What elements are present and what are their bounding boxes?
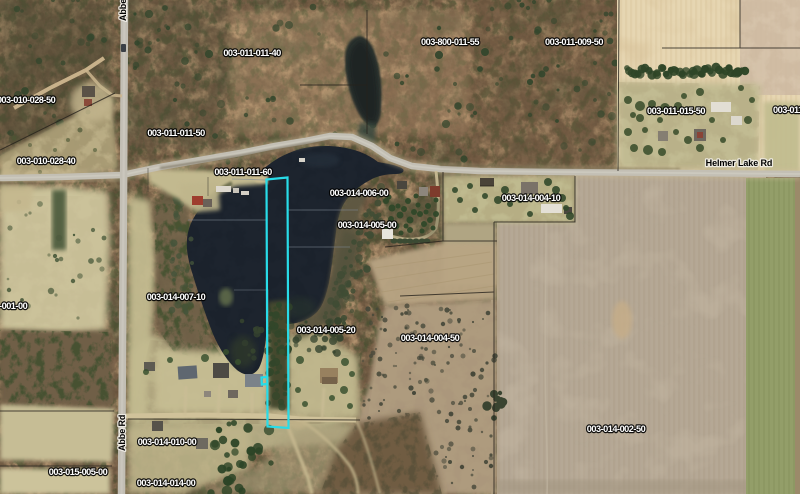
svg-text:Abbe Rd: Abbe Rd — [118, 0, 128, 21]
svg-text:003-014-007-10: 003-014-007-10 — [147, 292, 206, 302]
svg-text:003-011-011-60: 003-011-011-60 — [214, 167, 272, 177]
svg-text:Helmer Lake Rd: Helmer Lake Rd — [706, 158, 773, 168]
svg-text:003-011-011-50: 003-011-011-50 — [147, 128, 205, 138]
svg-text:003-015-005-00: 003-015-005-00 — [49, 467, 108, 477]
svg-text:003-014-005-00: 003-014-005-00 — [338, 220, 397, 230]
svg-text:003-015-001-00: 003-015-001-00 — [0, 301, 28, 311]
svg-text:003-010-028-40: 003-010-028-40 — [17, 156, 76, 166]
svg-text:003-011-015-50: 003-011-015-50 — [647, 106, 705, 116]
svg-text:003-014-005-20: 003-014-005-20 — [297, 325, 356, 335]
svg-text:003-014-004-50: 003-014-004-50 — [401, 333, 460, 343]
svg-text:003-014-010-00: 003-014-010-00 — [138, 437, 197, 447]
svg-text:003-011-011-40: 003-011-011-40 — [223, 48, 281, 58]
svg-text:Abbe Rd: Abbe Rd — [117, 415, 127, 451]
svg-text:003-010-028-50: 003-010-028-50 — [0, 95, 56, 105]
svg-text:003-014-006-00: 003-014-006-00 — [330, 188, 389, 198]
svg-text:003-014-002-50: 003-014-002-50 — [587, 424, 646, 434]
svg-text:003-011-015-70: 003-011-015-70 — [773, 105, 800, 115]
svg-text:003-014-014-00: 003-014-014-00 — [137, 478, 196, 488]
svg-text:003-011-009-50: 003-011-009-50 — [545, 37, 603, 47]
svg-text:003-800-011-55: 003-800-011-55 — [421, 37, 479, 47]
svg-text:003-014-004-10: 003-014-004-10 — [502, 193, 561, 203]
